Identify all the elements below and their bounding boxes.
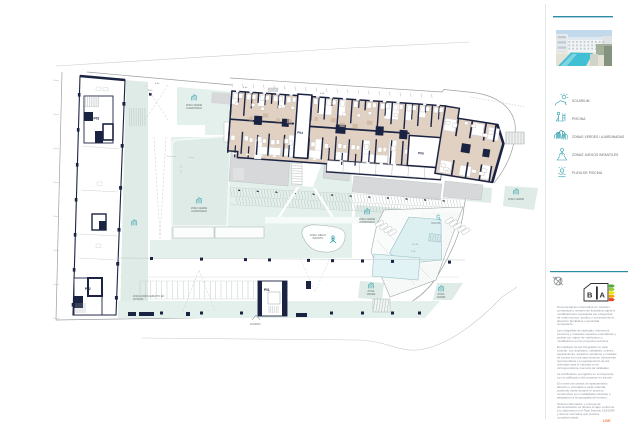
svg-text:P01: P01: [264, 288, 270, 292]
svg-text:P.1,40: P.1,40: [412, 244, 419, 246]
svg-text:AJARDINADA: AJARDINADA: [191, 210, 207, 213]
svg-text:AJARDINADA: AJARDINADA: [186, 107, 202, 110]
svg-text:ZONAS VERDES / AJARDINADAS: ZONAS VERDES / AJARDINADAS: [572, 135, 624, 139]
svg-text:modificacion en los proyectos: modificacion en los proyectos tecnicos.: [557, 339, 609, 343]
svg-text:P04: P04: [297, 131, 303, 135]
svg-text:LIVE: LIVE: [603, 419, 611, 423]
svg-text:adaptacion a la topografia del: adaptacion a la topografia del terreno.: [557, 396, 608, 400]
svg-text:A: A: [600, 291, 606, 300]
svg-text:SOTANO: SOTANO: [133, 298, 143, 301]
svg-text:ACCESO: ACCESO: [250, 323, 261, 326]
svg-text:PLAYA DE PISCINA: PLAYA DE PISCINA: [572, 171, 603, 175]
svg-text:VERDE: VERDE: [437, 296, 446, 299]
svg-text:ZONA VERDE: ZONA VERDE: [508, 198, 524, 201]
svg-text:P02: P02: [85, 287, 91, 291]
svg-text:INFANTIL: INFANTIL: [313, 237, 325, 240]
svg-text:VERDE: VERDE: [367, 293, 376, 296]
svg-text:correspondiente memoria de cal: correspondiente memoria de calidades.: [557, 366, 610, 370]
svg-text:DUCHA: DUCHA: [432, 222, 441, 225]
svg-text:SOLARIUM: SOLARIUM: [572, 99, 590, 103]
svg-text:P03: P03: [94, 117, 100, 121]
svg-text:ZONAS JUEGOS INFANTILES: ZONAS JUEGOS INFANTILES: [572, 153, 618, 157]
svg-text:AJARDINADA: AJARDINADA: [359, 221, 375, 224]
svg-text:B: B: [587, 291, 593, 300]
svg-text:competente.: competente.: [557, 322, 574, 326]
svg-text:PISCINA: PISCINA: [572, 117, 586, 121]
svg-text:P05: P05: [418, 151, 424, 155]
svg-text:con la calificacion del proyec: con la calificacion del proyecto en tram…: [557, 376, 613, 380]
svg-text:complementarlo.: complementarlo.: [557, 416, 579, 420]
